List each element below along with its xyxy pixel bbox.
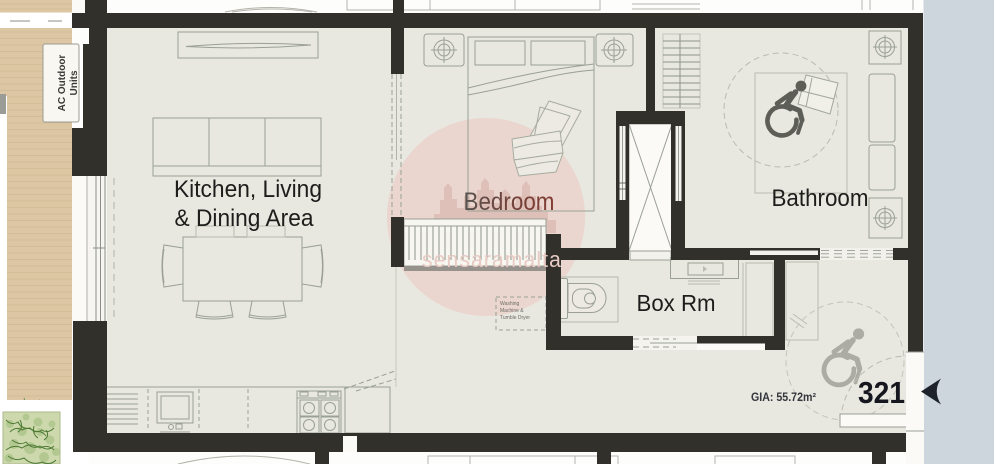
svg-text:321: 321 bbox=[858, 375, 905, 410]
svg-text:Machine &: Machine & bbox=[500, 308, 524, 314]
svg-text:GIA: 55.72m²: GIA: 55.72m² bbox=[751, 392, 816, 404]
svg-text:Units: Units bbox=[69, 70, 80, 95]
svg-text:Tumble Dryer: Tumble Dryer bbox=[500, 315, 530, 321]
svg-text:Bathroom: Bathroom bbox=[772, 185, 869, 212]
svg-text:sensaramalta: sensaramalta bbox=[422, 247, 562, 272]
svg-text:Kitchen, Living: Kitchen, Living bbox=[174, 176, 322, 203]
svg-text:AC Outdoor: AC Outdoor bbox=[57, 55, 68, 112]
svg-text:Bedroom: Bedroom bbox=[464, 188, 555, 216]
svg-text:Washing: Washing bbox=[500, 301, 519, 307]
svg-text:& Dining Area: & Dining Area bbox=[175, 205, 314, 232]
svg-text:Box Rm: Box Rm bbox=[637, 290, 716, 316]
